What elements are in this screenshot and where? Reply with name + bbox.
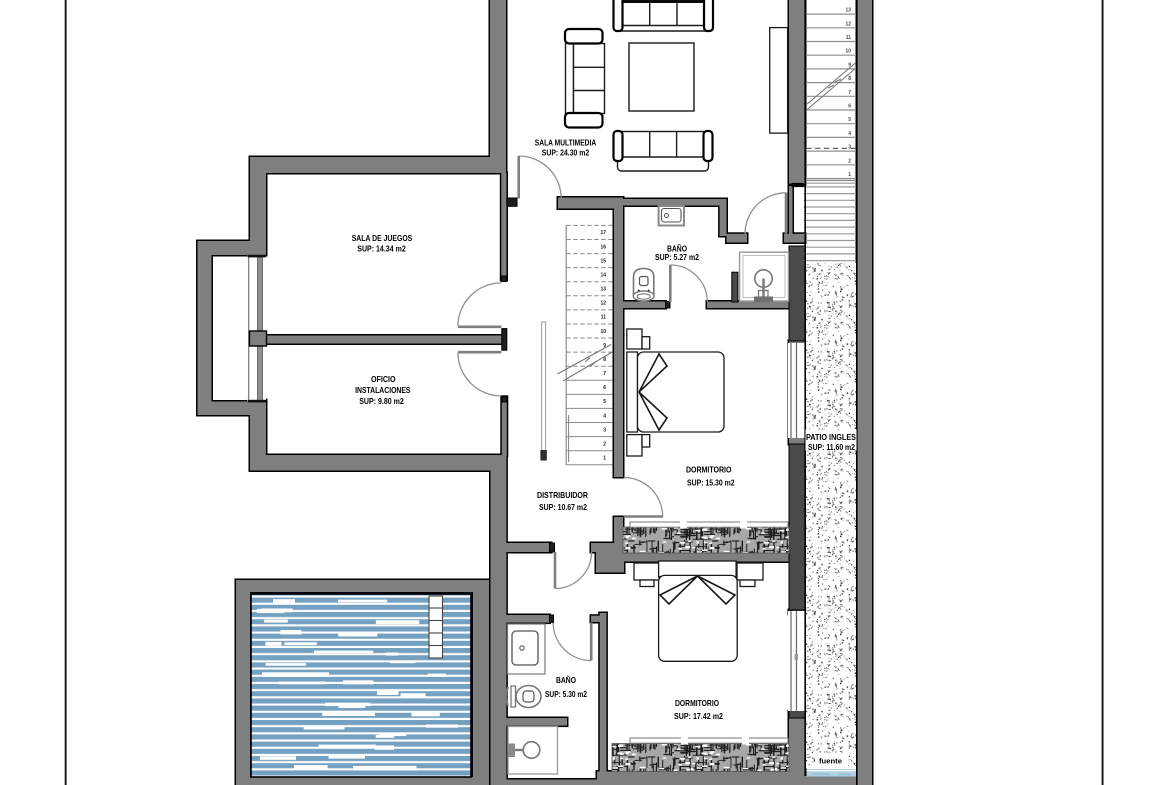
svg-text:SUP: 5.27 m2: SUP: 5.27 m2 xyxy=(655,252,699,262)
svg-text:11: 11 xyxy=(601,315,607,321)
svg-text:DISTRIBUIDOR: DISTRIBUIDOR xyxy=(537,490,588,500)
svg-text:14: 14 xyxy=(600,273,606,279)
svg-text:SUP: 11.60 m2: SUP: 11.60 m2 xyxy=(808,443,855,452)
svg-text:5: 5 xyxy=(848,117,851,123)
svg-text:SUP: 5.30 m2: SUP: 5.30 m2 xyxy=(545,689,587,699)
svg-text:SALA DE JUEGOS: SALA DE JUEGOS xyxy=(352,233,413,243)
svg-text:DORMITORIO: DORMITORIO xyxy=(675,698,719,708)
svg-text:SUP: 17.42 m2: SUP: 17.42 m2 xyxy=(674,711,723,721)
svg-text:8: 8 xyxy=(848,76,851,82)
svg-text:2: 2 xyxy=(603,441,606,447)
svg-text:4: 4 xyxy=(603,413,606,419)
svg-text:13: 13 xyxy=(845,8,851,14)
svg-text:SUP: 15.30 m2: SUP: 15.30 m2 xyxy=(687,478,735,488)
svg-text:12: 12 xyxy=(845,21,851,27)
svg-text:SUP: 9.80 m2: SUP: 9.80 m2 xyxy=(359,396,404,406)
svg-text:PATIO INGLES: PATIO INGLES xyxy=(806,433,857,442)
svg-text:SALA MULTIMEDIA: SALA MULTIMEDIA xyxy=(535,137,597,147)
svg-text:SUP: 10.67 m2: SUP: 10.67 m2 xyxy=(539,502,587,512)
svg-text:1: 1 xyxy=(848,172,851,178)
svg-text:5: 5 xyxy=(603,399,606,405)
svg-text:12: 12 xyxy=(600,301,606,307)
svg-text:SUP: 14.34 m2: SUP: 14.34 m2 xyxy=(357,244,406,254)
svg-text:7: 7 xyxy=(603,371,606,377)
svg-text:4: 4 xyxy=(848,131,851,137)
svg-text:13: 13 xyxy=(600,287,606,293)
svg-text:SUP: 24.30 m2: SUP: 24.30 m2 xyxy=(542,148,590,158)
svg-text:fuente: fuente xyxy=(819,759,842,766)
svg-text:BAÑO: BAÑO xyxy=(556,675,576,685)
svg-text:3: 3 xyxy=(848,145,851,151)
svg-text:10: 10 xyxy=(845,49,851,55)
svg-text:8: 8 xyxy=(603,357,606,363)
svg-text:7: 7 xyxy=(848,90,851,96)
svg-text:OFICIO: OFICIO xyxy=(371,374,396,384)
svg-text:1: 1 xyxy=(603,456,606,462)
svg-text:INSTALACIONES: INSTALACIONES xyxy=(355,385,411,395)
svg-text:17: 17 xyxy=(600,230,606,236)
svg-text:DORMITORIO: DORMITORIO xyxy=(686,464,732,474)
svg-text:15: 15 xyxy=(600,258,606,264)
svg-text:16: 16 xyxy=(600,244,606,250)
svg-text:11: 11 xyxy=(846,35,852,41)
svg-text:6: 6 xyxy=(848,104,851,110)
svg-text:6: 6 xyxy=(603,385,606,391)
svg-text:3: 3 xyxy=(603,427,606,433)
svg-text:10: 10 xyxy=(600,329,606,335)
svg-text:2: 2 xyxy=(848,158,851,164)
